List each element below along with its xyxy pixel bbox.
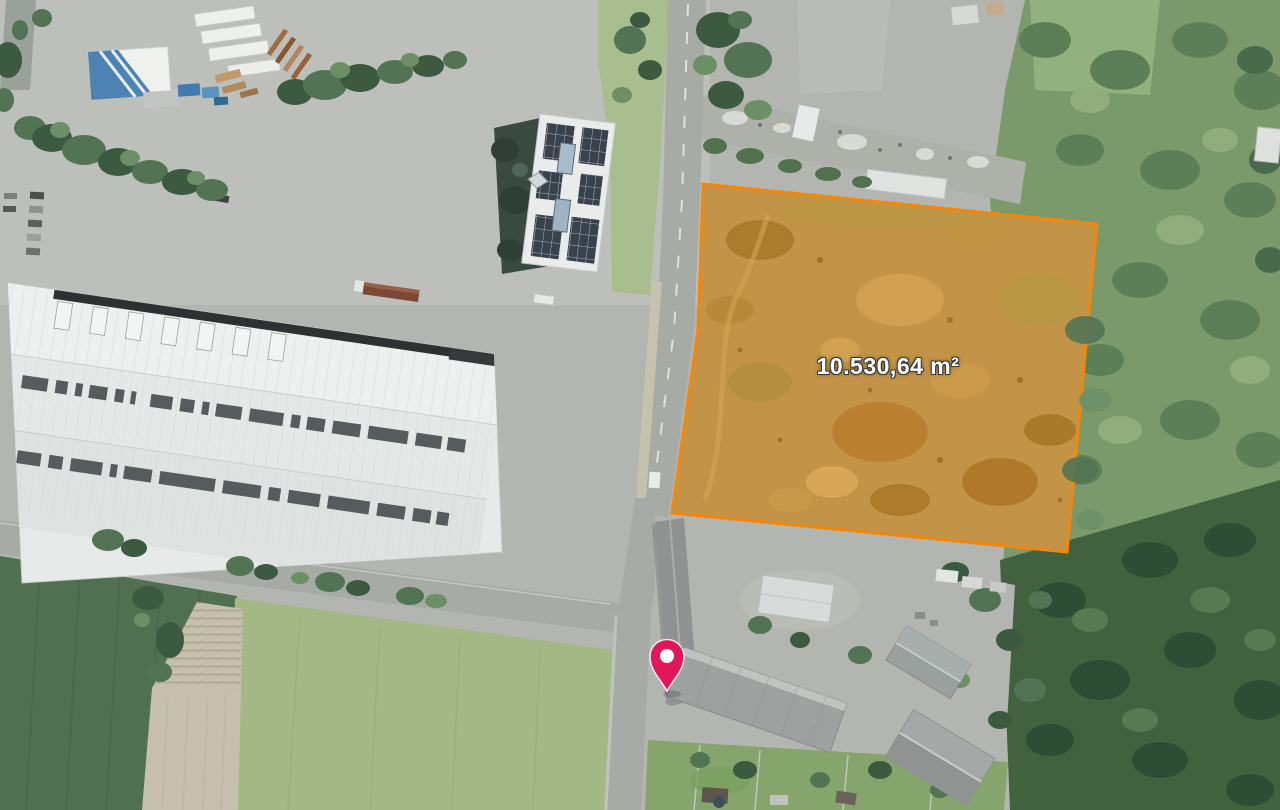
aerial-imagery[interactable] [0, 0, 1280, 810]
vehicle-on-road [648, 472, 660, 489]
small-building-right-edge [1254, 127, 1280, 163]
skylight-atrium [557, 143, 576, 175]
parcel-polygon[interactable] [672, 184, 1097, 552]
shed [951, 5, 979, 26]
pin-hole [660, 649, 674, 663]
map-canvas[interactable]: 10.530,64 m² [0, 0, 1280, 810]
shed [985, 1, 1004, 16]
solar-panel-building [491, 114, 615, 274]
skylight-atrium [552, 199, 571, 233]
pool [713, 796, 725, 808]
pin-shadow [663, 691, 681, 698]
